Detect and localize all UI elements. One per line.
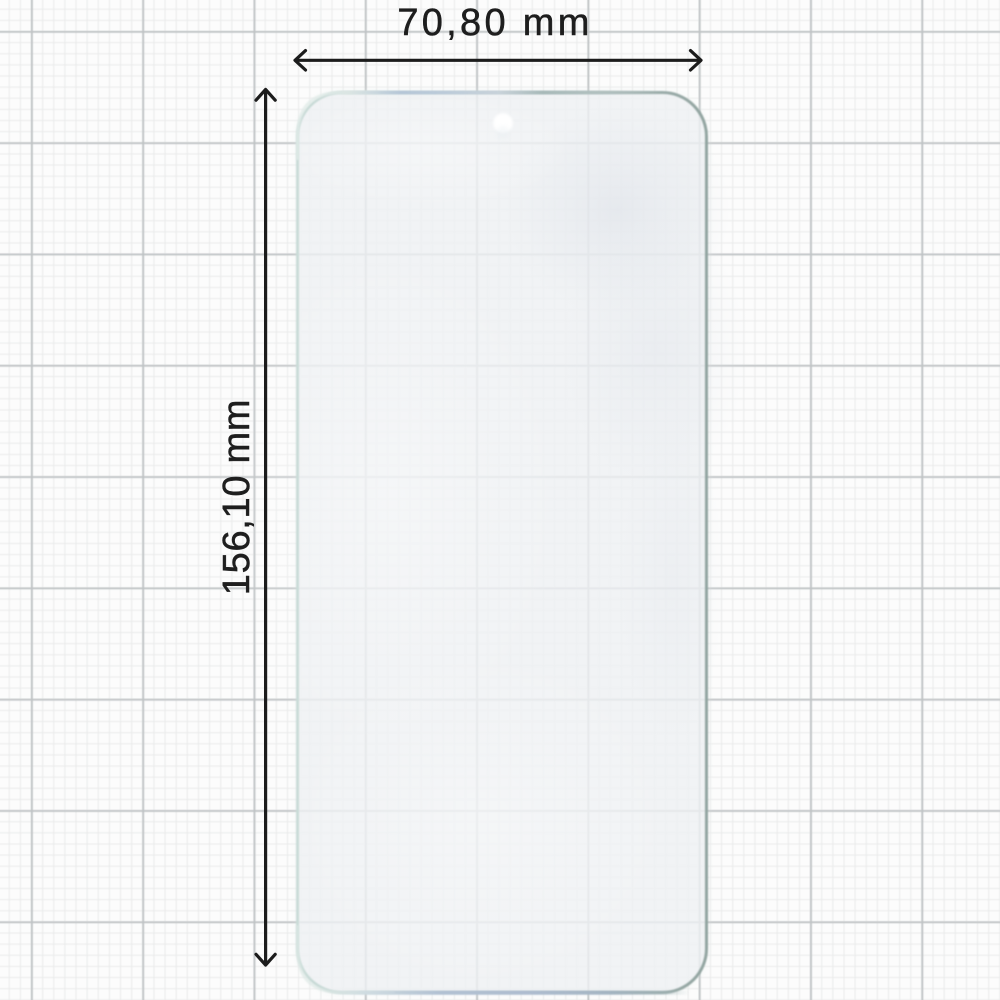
svg-text:156,10 mm: 156,10 mm <box>216 399 258 595</box>
svg-text:70,80 mm: 70,80 mm <box>397 2 592 44</box>
